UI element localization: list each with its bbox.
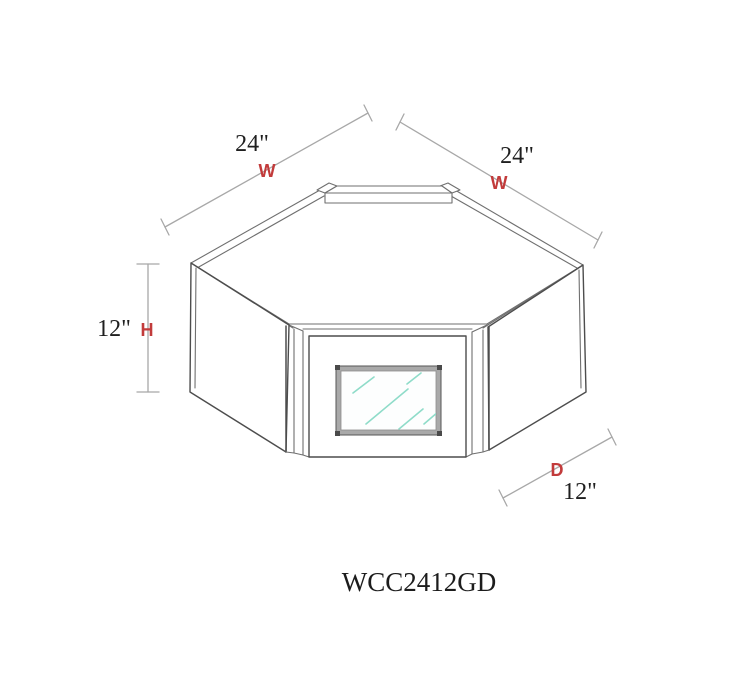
depth-axis-label: D [551, 460, 564, 480]
glass-panel [341, 371, 436, 430]
cabinet-dimension-diagram: 24" W 24" W 12" H [0, 0, 746, 676]
width-right-axis-label: W [491, 173, 508, 193]
model-code: WCC2412GD [342, 567, 497, 597]
diagram-svg: 24" W 24" W 12" H [0, 0, 746, 676]
left-front-stile [286, 326, 309, 457]
right-front-stile [466, 327, 489, 457]
hanging-rail-front [325, 193, 452, 203]
dimension-height: 12" H [97, 264, 159, 392]
dimension-depth: D 12" [499, 429, 616, 506]
width-left-value: 24" [235, 131, 269, 157]
hanging-rail-top [325, 186, 452, 193]
glass-door [309, 336, 466, 457]
height-value: 12" [97, 316, 131, 342]
cabinet-drawing [190, 183, 586, 457]
hanging-rail [317, 183, 460, 203]
width-right-value: 24" [500, 143, 534, 169]
width-left-axis-label: W [259, 161, 276, 181]
depth-value: 12" [563, 479, 597, 505]
height-axis-label: H [141, 320, 154, 340]
